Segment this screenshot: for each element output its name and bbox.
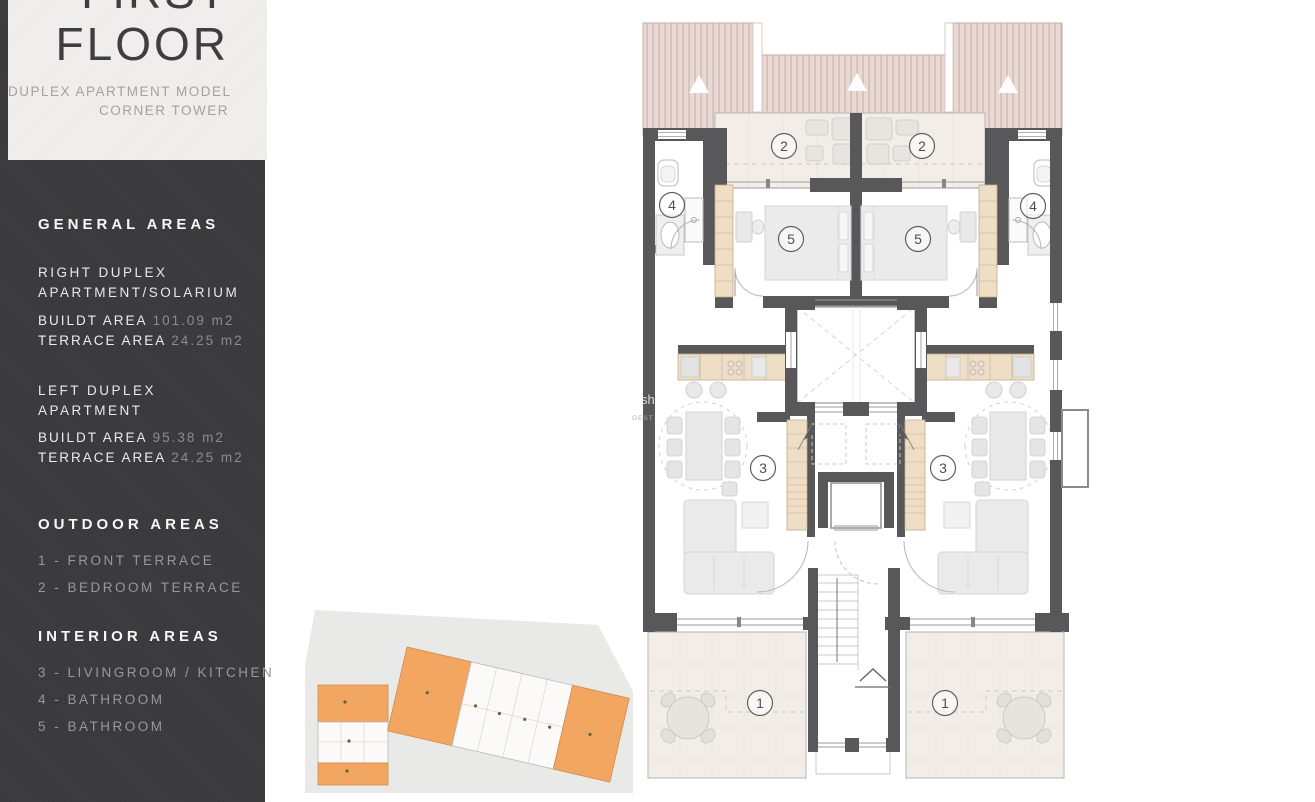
- left-duplex-terrace-area: TERRACE AREA 24.25 m2: [38, 448, 244, 468]
- right-duplex-line2: APARTMENT/SOLARIUM: [38, 283, 239, 303]
- svg-text:GEST: GEST: [632, 415, 654, 422]
- right-duplex-name: RIGHT DUPLEX APARTMENT/SOLARIUM: [38, 263, 239, 303]
- room-label-livingroom: 3: [931, 456, 956, 481]
- room-label-bedroom-terrace: 2: [772, 134, 797, 159]
- desk: [736, 212, 752, 242]
- svg-text:4: 4: [668, 197, 676, 213]
- page-title-floor: FLOOR: [8, 18, 229, 70]
- side-balcony-box: [1062, 410, 1088, 487]
- bed: [765, 206, 851, 280]
- left-duplex-line1: LEFT DUPLEX: [38, 381, 156, 401]
- title-block: FIRST FLOOR DUPLEX APARTMENT MODEL CORNE…: [8, 0, 267, 160]
- keyplan-left-building: [318, 685, 388, 785]
- svg-text:5: 5: [787, 231, 795, 247]
- metric-value: 24.25 m2: [171, 450, 243, 465]
- svg-text:sh: sh: [641, 392, 655, 407]
- interior-areas-list: 3 - LIVINGROOM / KITCHEN 4 - BATHROOM 5 …: [38, 659, 274, 740]
- svg-text:3: 3: [939, 460, 947, 476]
- title-subtitle: DUPLEX APARTMENT MODEL CORNER TOWER: [8, 82, 229, 120]
- interior-areas-heading: INTERIOR AREAS: [38, 628, 222, 645]
- room-label-bedroom-terrace: 2: [910, 134, 935, 159]
- legend-item-bathroom-4: 4 - BATHROOM: [38, 686, 274, 713]
- page-title-first: FIRST: [8, 0, 229, 18]
- room-label-front-terrace: 1: [748, 691, 773, 716]
- roof-gap: [945, 23, 953, 112]
- desk-chair: [752, 220, 764, 234]
- floor-plan: 2 2 5 5 4 4 3: [630, 0, 1100, 802]
- right-duplex-metrics: BUILDT AREA 101.09 m2 TERRACE AREA 24.25…: [38, 311, 244, 350]
- metric-label: TERRACE AREA: [38, 450, 166, 465]
- outdoor-areas-heading: OUTDOOR AREAS: [38, 516, 223, 533]
- metric-value: 95.38 m2: [153, 430, 225, 445]
- room-label-bathroom-4: 4: [1021, 194, 1046, 219]
- central-wall: [850, 113, 862, 308]
- front-terrace-area: [648, 632, 806, 778]
- metric-value: 24.25 m2: [171, 333, 243, 348]
- metric-label: TERRACE AREA: [38, 333, 166, 348]
- svg-text:2: 2: [918, 138, 926, 154]
- key-plan: [305, 605, 635, 795]
- storage-closet: [787, 420, 807, 530]
- up-arrow-icon: [860, 669, 886, 681]
- room-label-front-terrace: 1: [933, 691, 958, 716]
- svg-text:3: 3: [759, 460, 767, 476]
- svg-text:5: 5: [914, 231, 922, 247]
- legend-item-livingroom-kitchen: 3 - LIVINGROOM / KITCHEN: [38, 659, 274, 686]
- legend-item-bathroom-5: 5 - BATHROOM: [38, 713, 274, 740]
- svg-text:1: 1: [941, 695, 949, 711]
- svg-text:4: 4: [1029, 198, 1037, 214]
- metric-label: BUILDT AREA: [38, 313, 147, 328]
- room-label-bathroom-5: 5: [779, 227, 804, 252]
- legend-item-front-terrace: 1 - FRONT TERRACE: [38, 547, 243, 574]
- roof-gap: [753, 23, 762, 112]
- subtitle-model: DUPLEX APARTMENT MODEL: [8, 82, 229, 101]
- right-duplex-line1: RIGHT DUPLEX: [38, 263, 239, 283]
- metric-label: BUILDT AREA: [38, 430, 147, 445]
- legend-item-bedroom-terrace: 2 - BEDROOM TERRACE: [38, 574, 243, 601]
- left-duplex-line2: APARTMENT: [38, 401, 156, 421]
- left-duplex-buildt-area: BUILDT AREA 95.38 m2: [38, 428, 244, 448]
- right-duplex-buildt-area: BUILDT AREA 101.09 m2: [38, 311, 244, 331]
- room-label-bathroom-4: 4: [660, 193, 685, 218]
- svg-text:1: 1: [756, 695, 764, 711]
- page: GENERAL AREAS RIGHT DUPLEX APARTMENT/SOL…: [0, 0, 1315, 802]
- outdoor-areas-list: 1 - FRONT TERRACE 2 - BEDROOM TERRACE: [38, 547, 243, 601]
- metric-value: 101.09 m2: [153, 313, 235, 328]
- left-duplex-name: LEFT DUPLEX APARTMENT: [38, 381, 156, 421]
- room-label-livingroom: 3: [751, 456, 776, 481]
- room-label-bathroom-5: 5: [906, 227, 931, 252]
- skylight-void: [785, 296, 927, 416]
- svg-text:2: 2: [780, 138, 788, 154]
- right-duplex-terrace-area: TERRACE AREA 24.25 m2: [38, 331, 244, 351]
- left-duplex-metrics: BUILDT AREA 95.38 m2 TERRACE AREA 24.25 …: [38, 428, 244, 467]
- general-areas-heading: GENERAL AREAS: [38, 216, 219, 233]
- subtitle-tower: CORNER TOWER: [8, 101, 229, 120]
- wardrobe: [715, 185, 733, 297]
